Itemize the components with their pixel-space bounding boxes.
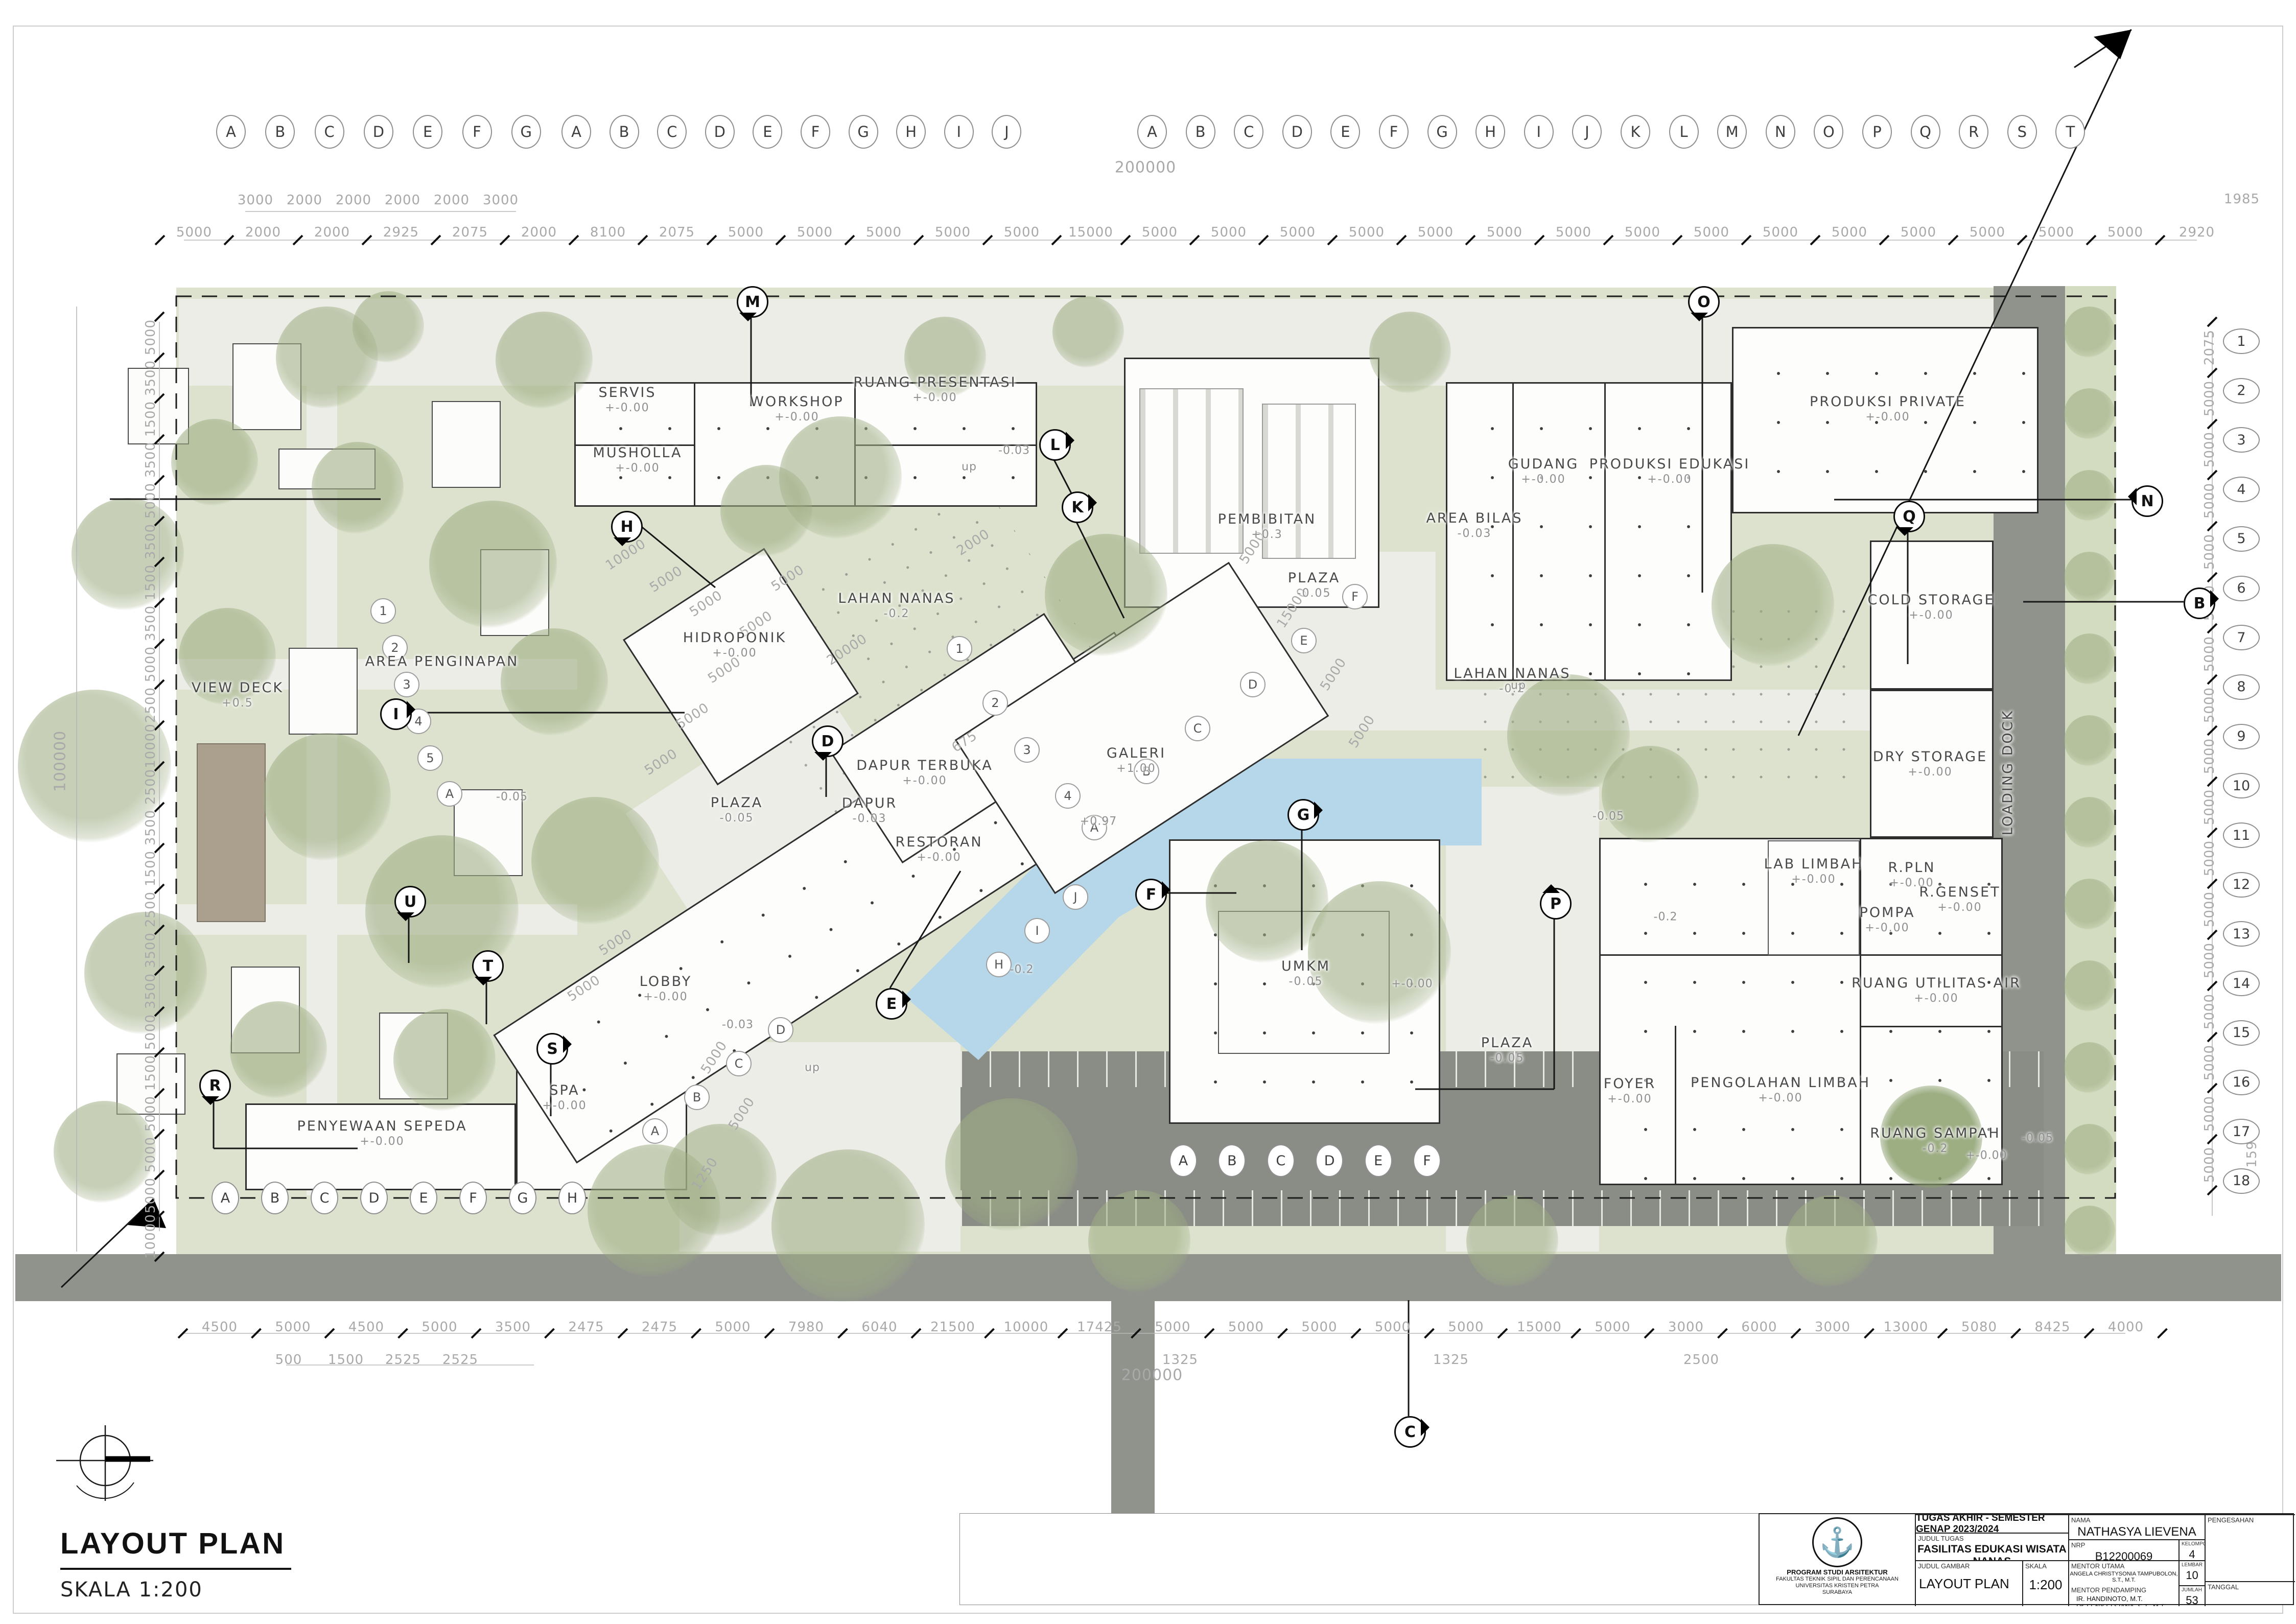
dim-label: 1500 — [143, 564, 158, 600]
dim-label: 2475 — [642, 1320, 677, 1335]
level-annotation: -0.2 — [1010, 963, 1034, 976]
section-marker-n: N — [2131, 485, 2163, 517]
dim-label: 2075 — [659, 225, 695, 240]
grid-bubble-14: 14 — [2223, 971, 2260, 996]
dim-label: 2500 — [143, 891, 158, 927]
grid-bubble-1: 1 — [2223, 328, 2260, 354]
grid-bubble-B: B — [1218, 1144, 1246, 1177]
grid-bubble-7: 7 — [2223, 625, 2260, 650]
room-label-workshop: WORKSHOP+-0.00 — [750, 394, 844, 423]
dim-label: 6000 — [1741, 1320, 1777, 1335]
dim-label: 4000 — [2108, 1320, 2144, 1335]
dim-label: 21500 — [930, 1320, 975, 1335]
north-symbol-icon — [56, 1425, 153, 1501]
dim-label: 3500 — [143, 605, 158, 641]
grid-bubble-11: 11 — [2223, 822, 2260, 848]
grid-bubble-E: E — [1330, 115, 1360, 149]
dim-label: 5000 — [1832, 225, 1867, 240]
dim-label: 5000 — [143, 1014, 158, 1050]
title-block: ⚓ PROGRAM STUDI ARSITEKTUR FAKULTAS TEKN… — [1759, 1513, 2294, 1605]
grid-bubble-D: D — [1240, 672, 1266, 697]
dim-label: 10000 — [143, 723, 158, 768]
dim-label: 3000 — [238, 193, 273, 208]
kelompok-label: KELOMPOK — [2180, 1540, 2205, 1548]
dim-label: 5000 — [2202, 1045, 2217, 1080]
section-marker-q: Q — [1893, 501, 1925, 532]
section-marker-i: I — [380, 698, 412, 730]
dim-label: 5000 — [797, 225, 833, 240]
grid-bubble-M: M — [1717, 115, 1747, 149]
grid-bubble-C: C — [1234, 115, 1263, 149]
room-label-dapur-terbuka: DAPUR TERBUKA+-0.00 — [856, 758, 993, 787]
room-label-spa: SPA+-0.00 — [542, 1082, 587, 1112]
dim-label: 5000 — [1595, 1320, 1630, 1335]
institution-line: FAKULTAS TEKNIK SIPIL DAN PERENCANAAN — [1760, 1576, 1915, 1583]
grid-bubble-A: A — [1137, 115, 1167, 149]
grid-bubble-3: 3 — [1014, 737, 1040, 763]
dim-label: 1500 — [328, 1352, 364, 1368]
grid-bubble-Q: Q — [1911, 115, 1940, 149]
grid-bubble-L: L — [1669, 115, 1699, 149]
grid-bubble-D: D — [705, 115, 735, 149]
room-label-hidroponik: HIDROPONIK+-0.00 — [683, 630, 786, 660]
mentor-pendamping-label: MENTOR PENDAMPING — [2069, 1585, 2178, 1595]
dim-label: 2000 — [434, 193, 470, 208]
room-label-lab-limbah: LAB LIMBAH+-0.00 — [1764, 856, 1864, 886]
room-label-plaza: PLAZA-0.05 — [1288, 570, 1340, 600]
dim-label: 1500 — [143, 1055, 158, 1091]
grid-bubble-D: D — [768, 1017, 793, 1043]
institution-line: UNIVERSITAS KRISTEN PETRA — [1760, 1583, 1915, 1589]
dim-label: 3000 — [1815, 1320, 1850, 1335]
grid-bubble-C: C — [1267, 1144, 1295, 1177]
room-label-plaza: PLAZA-0.05 — [711, 795, 763, 825]
grid-bubble-F: F — [462, 115, 492, 149]
page-title: LAYOUT PLAN — [60, 1526, 291, 1561]
dim-label: 5000 — [1763, 225, 1798, 240]
grid-bubble-I: I — [1524, 115, 1554, 149]
section-marker-u: U — [394, 886, 426, 917]
jumlah-label: JUMLAH — [2180, 1586, 2205, 1594]
dim-label: 17425 — [1077, 1320, 1122, 1335]
grid-bubble-E: E — [753, 115, 782, 149]
dim-label: 3000 — [1668, 1320, 1704, 1335]
grid-bubble-D: D — [360, 1182, 388, 1214]
dim-label: 5000 — [176, 225, 212, 240]
dim-label: 5000 — [1142, 225, 1178, 240]
room-label-pengolahan-limbah: PENGOLAHAN LIMBAH+-0.00 — [1691, 1075, 1870, 1104]
grid-bubble-O: O — [1814, 115, 1843, 149]
north-flag-icon — [2094, 30, 2131, 59]
room-label-pompa: POMPA+-0.00 — [1860, 905, 1915, 934]
dim-label: 5000 — [1280, 225, 1316, 240]
dim-label: 2000 — [314, 225, 350, 240]
dim-label: 5000 — [2202, 381, 2217, 416]
level-annotation: up — [1511, 679, 1526, 692]
grid-bubble-J: J — [992, 115, 1021, 149]
section-flag-icon — [2119, 488, 2137, 505]
grid-bubble-K: K — [1621, 115, 1650, 149]
judul-gambar-label: JUDUL GAMBAR — [1916, 1561, 2022, 1571]
dim-label: 5000 — [1487, 225, 1522, 240]
dim-label: 2920 — [2179, 225, 2215, 240]
section-marker-m: M — [737, 286, 768, 318]
section-flag-icon — [2210, 590, 2228, 607]
dim-label: 5000 — [866, 225, 902, 240]
nama-label: NAMA — [2069, 1515, 2205, 1525]
dim-label: 2500 — [143, 769, 158, 805]
grid-bubble-G: G — [849, 115, 878, 149]
level-annotation: up — [805, 1062, 820, 1074]
grid-bubble-B: B — [261, 1182, 289, 1214]
dim-label: 3500 — [143, 524, 158, 559]
dim-label: 200000 — [1115, 159, 1177, 177]
room-label-ruang-utilitas-air: RUANG UTILITAS AIR+-0.00 — [1852, 975, 2021, 1005]
grid-bubble-1: 1 — [947, 636, 972, 662]
dim-label: 3000 — [483, 193, 519, 208]
dim-label: 5000 — [2107, 225, 2143, 240]
room-label-produksi-edukasi: PRODUKSI EDUKASI+-0.00 — [1589, 456, 1750, 486]
mentor-utama-label: MENTOR UTAMA — [2069, 1561, 2178, 1571]
grid-bubble-T: T — [2055, 115, 2085, 149]
dim-label: 5000 — [1155, 1320, 1190, 1335]
lembar-label: LEMBAR — [2180, 1561, 2205, 1569]
dim-label: 5000 — [143, 319, 158, 355]
dim-label: 8100 — [590, 225, 626, 240]
judul-tugas-line1: FASILITAS EDUKASI WISATA NANAS — [1916, 1543, 2068, 1560]
room-label-servis: SERVIS+-0.00 — [598, 385, 656, 414]
dim-label: 5000 — [143, 1178, 158, 1213]
grid-bubble-H: H — [1475, 115, 1505, 149]
dim-label: 5000 — [1418, 225, 1454, 240]
grid-bubble-F: F — [1379, 115, 1409, 149]
dim-label: 5000 — [1970, 225, 2005, 240]
section-flag-icon — [814, 752, 832, 769]
dim-label: 2075 — [2202, 329, 2217, 365]
dim-label: 5000 — [2202, 432, 2217, 467]
dim-label: 3500 — [143, 360, 158, 396]
room-label-galeri: GALERI+1.00 — [1107, 745, 1166, 775]
grid-bubble-C: C — [315, 115, 344, 149]
section-flag-icon — [1896, 527, 1913, 545]
section-flag-icon — [1162, 881, 1179, 899]
grid-bubble-F: F — [801, 115, 830, 149]
grid-bubble-10: 10 — [2223, 773, 2260, 798]
dim-label: 5000 — [1228, 1320, 1264, 1335]
grid-bubble-12: 12 — [2223, 872, 2260, 898]
dim-label: 5000 — [2202, 483, 2217, 519]
dim-label: 2525 — [442, 1352, 478, 1368]
level-annotation: -0.03 — [998, 444, 1030, 457]
institution-line: SURABAYA — [1760, 1589, 1915, 1596]
room-label-lahan-nanas: LAHAN NANAS-0.2 — [838, 591, 955, 620]
room-label-lobby: LOBBY+-0.00 — [640, 974, 692, 1003]
grid-bubble-J: J — [1572, 115, 1602, 149]
grid-bubble-S: S — [2007, 115, 2037, 149]
room-label-musholla: MUSHOLLA+-0.00 — [593, 445, 683, 475]
section-marker-r: R — [199, 1070, 231, 1101]
section-marker-d: D — [812, 725, 844, 757]
dim-label: 5000 — [1349, 225, 1385, 240]
dim-label: 3500 — [143, 442, 158, 478]
grid-bubble-B: B — [684, 1085, 710, 1110]
section-marker-s: S — [536, 1033, 568, 1065]
dim-label: 2000 — [245, 225, 281, 240]
room-label-produksi-private: PRODUKSI PRIVATE+-0.00 — [1810, 394, 1966, 423]
dim-label: 5080 — [1961, 1320, 1997, 1335]
dim-label: 3500 — [143, 810, 158, 845]
grid-bubble-N: N — [1766, 115, 1795, 149]
room-label-area-penginapan: AREA PENGINAPAN — [365, 654, 519, 670]
grid-bubble-15: 15 — [2223, 1020, 2260, 1046]
grid-bubble-13: 13 — [2223, 921, 2260, 947]
drawing-title-group: LAYOUT PLAN SKALA 1:200 — [60, 1526, 291, 1602]
section-flag-icon — [1542, 876, 1560, 893]
dim-label: 200000 — [1121, 1367, 1183, 1384]
dim-label: 5000 — [1625, 225, 1660, 240]
section-marker-h: H — [611, 511, 643, 543]
room-label-ruang-presentasi: RUANG PRESENTASI+-0.00 — [853, 374, 1016, 404]
grid-bubble-4: 4 — [1055, 783, 1081, 809]
grid-bubble-F: F — [1342, 584, 1368, 609]
grid-bubble-B: B — [265, 115, 295, 149]
dim-label: 5000 — [143, 646, 158, 682]
dim-label: 5000 — [1694, 225, 1729, 240]
dim-label: 1325 — [1433, 1352, 1469, 1368]
dim-label: 5000 — [2202, 534, 2217, 570]
grid-bubble-5: 5 — [2223, 526, 2260, 552]
kelompok-value: 4 — [2180, 1548, 2205, 1560]
grid-bubble-2: 2 — [2223, 378, 2260, 404]
grid-bubble-C: C — [1185, 716, 1210, 741]
grid-bubble-H: H — [896, 115, 926, 149]
grid-bubble-3: 3 — [2223, 427, 2260, 453]
tanggal-label: TANGGAL — [2206, 1582, 2295, 1592]
section-marker-l: L — [1039, 429, 1071, 461]
mentor-pendamping-2: Dr. FENY ELSIANA, S.T., M.T. — [2069, 1603, 2178, 1606]
dim-label: 2525 — [385, 1352, 421, 1368]
room-label-gudang: GUDANG+-0.00 — [1508, 456, 1579, 486]
dim-label: 1500 — [143, 851, 158, 886]
dim-label: 8425 — [2034, 1320, 2070, 1335]
grid-bubble-16: 16 — [2223, 1070, 2260, 1095]
grid-bubble-A: A — [1169, 1144, 1197, 1177]
dim-label: 10000 — [1004, 1320, 1049, 1335]
grid-bubble-E: E — [1291, 628, 1317, 653]
room-label-view-deck: VIEW DECK+0.5 — [192, 680, 284, 710]
room-label-area-bilas: AREA BILAS-0.03 — [1426, 510, 1522, 540]
dim-label: 2000 — [521, 225, 557, 240]
dim-label: 5000 — [1901, 225, 1936, 240]
room-label-plaza: PLAZA-0.05 — [1481, 1035, 1533, 1065]
dim-label: 5000 — [935, 225, 971, 240]
section-marker-e: E — [876, 988, 907, 1020]
section-marker-p: P — [1540, 888, 1572, 920]
section-flag-icon — [475, 977, 492, 994]
dim-label: 7980 — [788, 1320, 824, 1335]
section-flag-icon — [1421, 1419, 1438, 1436]
dim-label: 5000 — [2039, 225, 2074, 240]
grid-bubble-C: C — [657, 115, 687, 149]
grid-bubble-I: I — [1024, 918, 1050, 944]
grid-bubble-D: D — [1282, 115, 1312, 149]
dim-label: 2500 — [143, 687, 158, 723]
grid-bubble-18: 18 — [2223, 1168, 2260, 1194]
nrp-label: NRP — [2069, 1540, 2178, 1550]
grid-bubble-I: I — [944, 115, 974, 149]
dim-label: 100000 — [52, 731, 69, 792]
dim-label: 2075 — [452, 225, 488, 240]
dim-label: 13000 — [1884, 1320, 1929, 1335]
dim-label: 3500 — [143, 932, 158, 968]
dim-label: 3500 — [495, 1320, 531, 1335]
dim-label: 6040 — [861, 1320, 897, 1335]
grid-bubble-8: 8 — [2223, 674, 2260, 700]
grid-bubble-H: H — [986, 952, 1012, 977]
skala-value: 1:200 — [2023, 1577, 2068, 1593]
dim-label: 5000 — [1375, 1320, 1411, 1335]
mentor-pendamping-1: IR. HANDINOTO, M.T. — [2069, 1595, 2178, 1603]
lembar-value: 10 — [2180, 1569, 2205, 1582]
grid-bubble-E: E — [1365, 1144, 1392, 1177]
section-marker-b: B — [2184, 587, 2215, 619]
dim-label: 1985 — [2224, 192, 2260, 207]
grid-bubble-A: A — [216, 115, 246, 149]
level-annotation: -0.03 — [722, 1019, 754, 1031]
grid-bubble-A: A — [561, 115, 591, 149]
grid-bubble-E: E — [413, 115, 442, 149]
dim-label: 5000 — [2202, 891, 2217, 927]
grid-bubble-F: F — [1413, 1144, 1441, 1177]
title-underline — [60, 1568, 291, 1570]
level-annotation: -0.05 — [1592, 810, 1624, 823]
titleblock-header: TUGAS AKHIR - SEMESTER GENAP 2023/2024 — [1916, 1514, 2068, 1533]
section-marker-g: G — [1287, 799, 1319, 831]
dim-label: 5000 — [2202, 687, 2217, 723]
room-label-dapur: DAPUR-0.03 — [842, 795, 898, 825]
level-annotation: up — [962, 461, 977, 474]
grid-bubble-A: A — [212, 1182, 239, 1214]
dim-label: 2000 — [287, 193, 322, 208]
dim-label: 5000 — [2202, 994, 2217, 1029]
dim-label: 5000 — [2202, 789, 2217, 825]
grid-bubble-F: F — [459, 1182, 487, 1214]
room-label-foyer: FOYER+-0.00 — [1604, 1076, 1656, 1105]
dim-label: 2925 — [383, 225, 419, 240]
grid-bubble-9: 9 — [2223, 724, 2260, 749]
dim-label: 4500 — [202, 1320, 238, 1335]
dim-label: 5000 — [728, 225, 764, 240]
room-label-loading-dock: LOADING DOCK — [2000, 710, 2016, 835]
dim-label: 2000 — [336, 193, 371, 208]
dim-label: 5000 — [421, 1320, 457, 1335]
dim-label: 10000 — [143, 1214, 158, 1259]
room-label-r-genset: R.GENSET+-0.00 — [1919, 884, 2000, 914]
institution-line: PROGRAM STUDI ARSITEKTUR — [1760, 1568, 1915, 1576]
dim-label: 5000 — [715, 1320, 751, 1335]
grid-bubble-P: P — [1862, 115, 1892, 149]
grid-bubble-J: J — [1063, 884, 1088, 910]
grid-bubble-4: 4 — [2223, 477, 2260, 502]
section-flag-icon — [1691, 313, 1708, 330]
level-annotation: -0.05 — [2022, 1132, 2053, 1145]
grid-bubble-D: D — [364, 115, 393, 149]
grid-bubble-G: G — [1427, 115, 1457, 149]
dim-label: 5000 — [2202, 1147, 2217, 1183]
section-flag-icon — [1066, 432, 1083, 449]
level-annotation: +0.97 — [1080, 815, 1117, 828]
grid-bubble-3: 3 — [394, 672, 419, 697]
level-annotation: +-0.00 — [1391, 978, 1433, 991]
section-flag-icon — [563, 1035, 580, 1053]
dim-label: 1500 — [143, 401, 158, 437]
nrp-value: B12200069 — [2069, 1550, 2178, 1560]
grid-bubble-6: 6 — [2223, 576, 2260, 601]
section-flag-icon — [739, 313, 757, 330]
scale-label: SKALA 1:200 — [60, 1578, 291, 1602]
grid-bubble-E: E — [410, 1182, 437, 1214]
dim-label: 5000 — [275, 1320, 311, 1335]
room-label-restoran: RESTORAN+-0.00 — [895, 834, 982, 864]
room-label-cold-storage: COLD STORAGE+-0.00 — [1867, 592, 1995, 622]
grid-bubble-B: B — [1186, 115, 1215, 149]
grid-bubble-R: R — [1959, 115, 1988, 149]
grid-bubble-G: G — [511, 115, 541, 149]
grid-bubble-D: D — [1316, 1144, 1343, 1177]
nama-value: NATHASYA LIEVENA — [2069, 1525, 2205, 1539]
grid-bubble-A: A — [437, 781, 462, 807]
grid-bubble-C: C — [726, 1051, 752, 1076]
level-annotation: -0.2 — [1654, 911, 1678, 924]
room-label-umkm: UMKM-0.05 — [1281, 958, 1330, 988]
room-label-pembibitan: PEMBIBITAN+0.3 — [1218, 511, 1317, 541]
jumlah-value: 53 — [2180, 1594, 2205, 1606]
grid-bubble-G: G — [509, 1182, 536, 1214]
dim-label: 4500 — [348, 1320, 384, 1335]
section-flag-icon — [397, 912, 414, 930]
dim-label: 5000 — [1556, 225, 1591, 240]
dim-label: 5000 — [2202, 738, 2217, 774]
dim-label: 5000 — [1211, 225, 1247, 240]
room-label-penyewaan-sepeda: PENYEWAAN SEPEDA+-0.00 — [297, 1118, 467, 1148]
grid-bubble-5: 5 — [417, 745, 443, 771]
skala-label: SKALA — [2023, 1561, 2068, 1571]
dim-label: 2500 — [1683, 1352, 1719, 1368]
judul-gambar-value: LAYOUT PLAN — [1916, 1571, 2022, 1597]
dim-label: 2475 — [568, 1320, 604, 1335]
section-flag-icon — [1314, 802, 1331, 819]
grid-bubble-17: 17 — [2223, 1119, 2260, 1144]
dim-label: 500 — [275, 1352, 302, 1368]
level-annotation: +-0.00 — [1965, 1149, 2007, 1162]
grid-bubble-H: H — [558, 1182, 586, 1214]
dim-label: 5000 — [2202, 1096, 2217, 1132]
grid-bubble-1: 1 — [370, 598, 396, 624]
grid-bubble-A: A — [642, 1118, 668, 1144]
university-logo: ⚓ PROGRAM STUDI ARSITEKTUR FAKULTAS TEKN… — [1760, 1514, 1915, 1604]
dim-label: 5000 — [2202, 636, 2217, 672]
dim-label: 5000 — [143, 483, 158, 519]
section-marker-c: C — [1394, 1416, 1426, 1448]
section-marker-t: T — [472, 950, 504, 982]
section-marker-o: O — [1688, 286, 1720, 318]
section-flag-icon — [407, 701, 424, 718]
mentor-utama-value: ANGELA CHRISTYSONIA TAMPUBOLON, S.T., M.… — [2069, 1571, 2178, 1583]
section-flag-icon — [614, 537, 631, 555]
layout-plan-canvas: LAYOUT PLAN SKALA 1:200 ⚓ PROGRAM STUDI … — [0, 0, 2296, 1624]
dim-label: 3500 — [143, 973, 158, 1009]
room-label-dry-storage: DRY STORAGE+-0.00 — [1873, 749, 1987, 779]
